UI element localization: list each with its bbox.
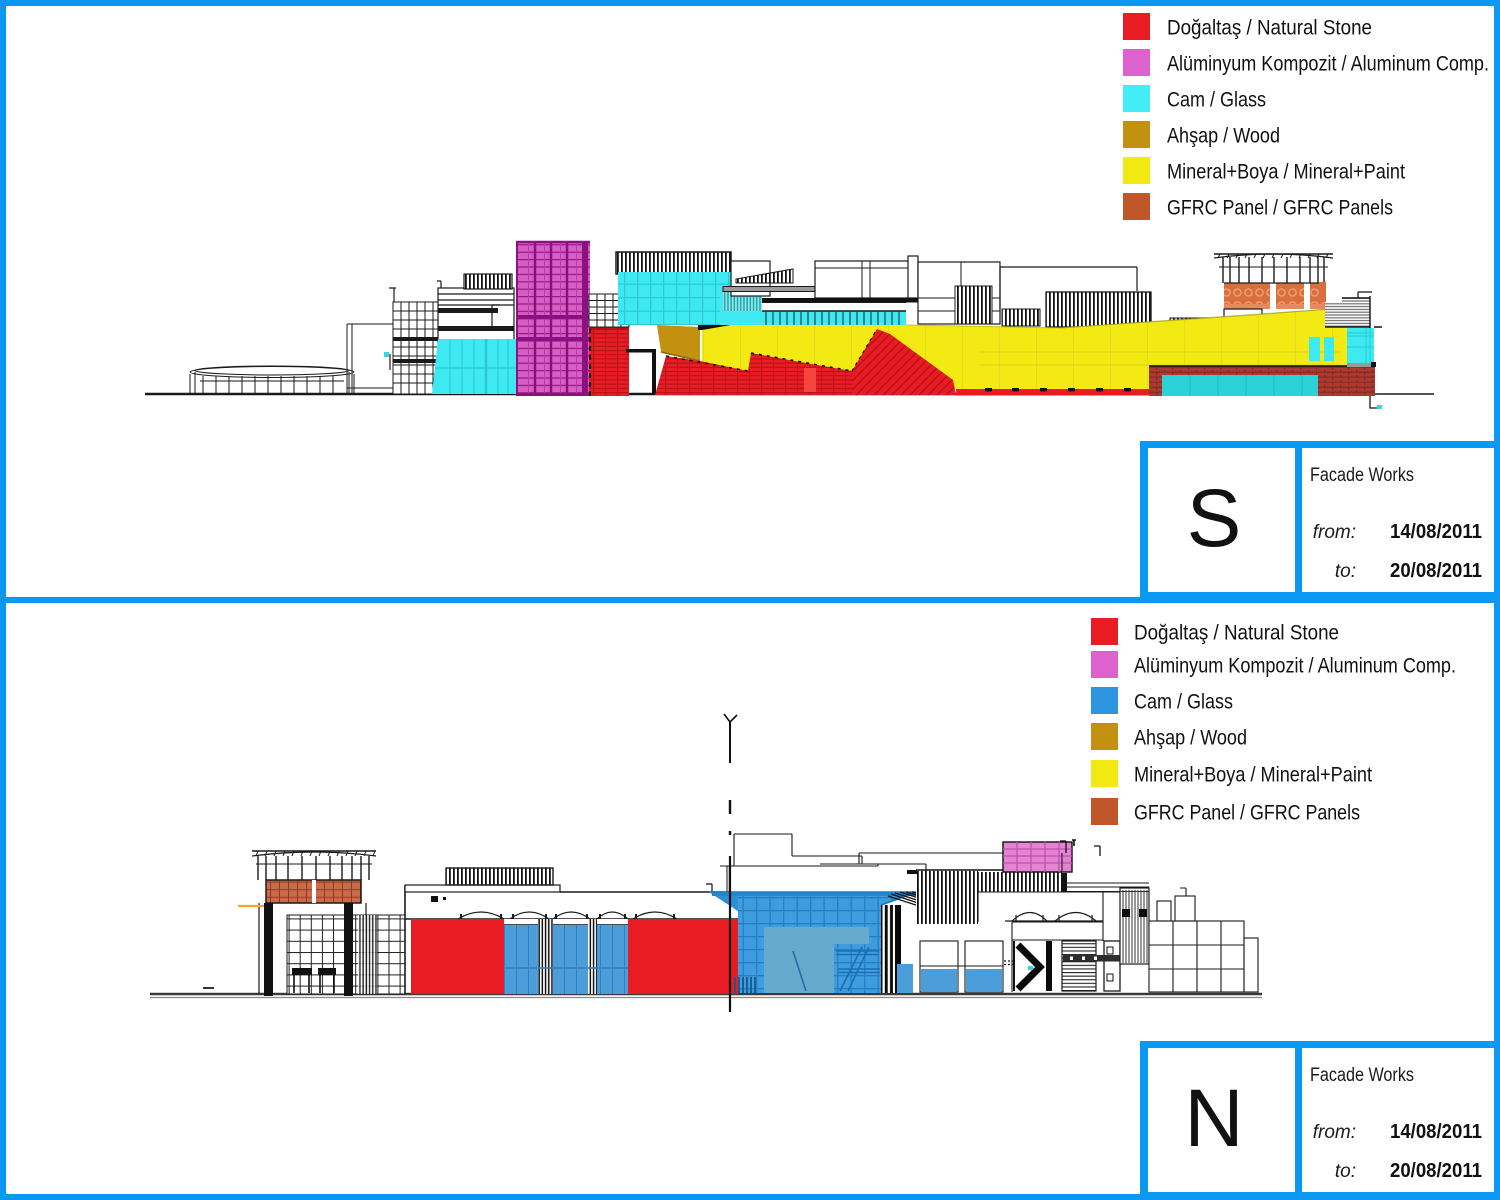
svg-text:to:: to:: [1335, 1161, 1356, 1182]
svg-text:Alüminyum Kompozit / Aluminum: Alüminyum Kompozit / Aluminum Comp.: [1167, 53, 1489, 76]
svg-text:20/08/2011: 20/08/2011: [1390, 560, 1482, 582]
svg-text:N: N: [1184, 1073, 1243, 1164]
svg-text:GFRC Panel / GFRC Panels: GFRC Panel / GFRC Panels: [1167, 197, 1393, 220]
svg-text:Mineral+Boya / Mineral+Paint: Mineral+Boya / Mineral+Paint: [1167, 161, 1405, 184]
svg-text:Doğaltaş / Natural Stone: Doğaltaş / Natural Stone: [1134, 622, 1339, 645]
svg-text:Cam / Glass: Cam / Glass: [1134, 691, 1233, 714]
svg-text:14/08/2011: 14/08/2011: [1390, 1121, 1482, 1143]
svg-text:Facade Works: Facade Works: [1310, 465, 1414, 486]
svg-text:Facade Works: Facade Works: [1310, 1065, 1414, 1086]
svg-text:GFRC Panel / GFRC Panels: GFRC Panel / GFRC Panels: [1134, 802, 1360, 825]
svg-text:Mineral+Boya / Mineral+Paint: Mineral+Boya / Mineral+Paint: [1134, 764, 1372, 787]
svg-text:Ahşap / Wood: Ahşap / Wood: [1134, 727, 1247, 750]
svg-text:from:: from:: [1313, 522, 1356, 543]
svg-text:Doğaltaş / Natural Stone: Doğaltaş / Natural Stone: [1167, 17, 1372, 40]
svg-text:14/08/2011: 14/08/2011: [1390, 521, 1482, 543]
svg-text:from:: from:: [1313, 1122, 1356, 1143]
svg-text:Cam / Glass: Cam / Glass: [1167, 89, 1266, 112]
svg-text:Ahşap / Wood: Ahşap / Wood: [1167, 125, 1280, 148]
svg-text:S: S: [1187, 473, 1242, 564]
svg-text:Alüminyum Kompozit / Aluminum: Alüminyum Kompozit / Aluminum Comp.: [1134, 655, 1456, 678]
svg-text:20/08/2011: 20/08/2011: [1390, 1160, 1482, 1182]
svg-text:to:: to:: [1335, 561, 1356, 582]
